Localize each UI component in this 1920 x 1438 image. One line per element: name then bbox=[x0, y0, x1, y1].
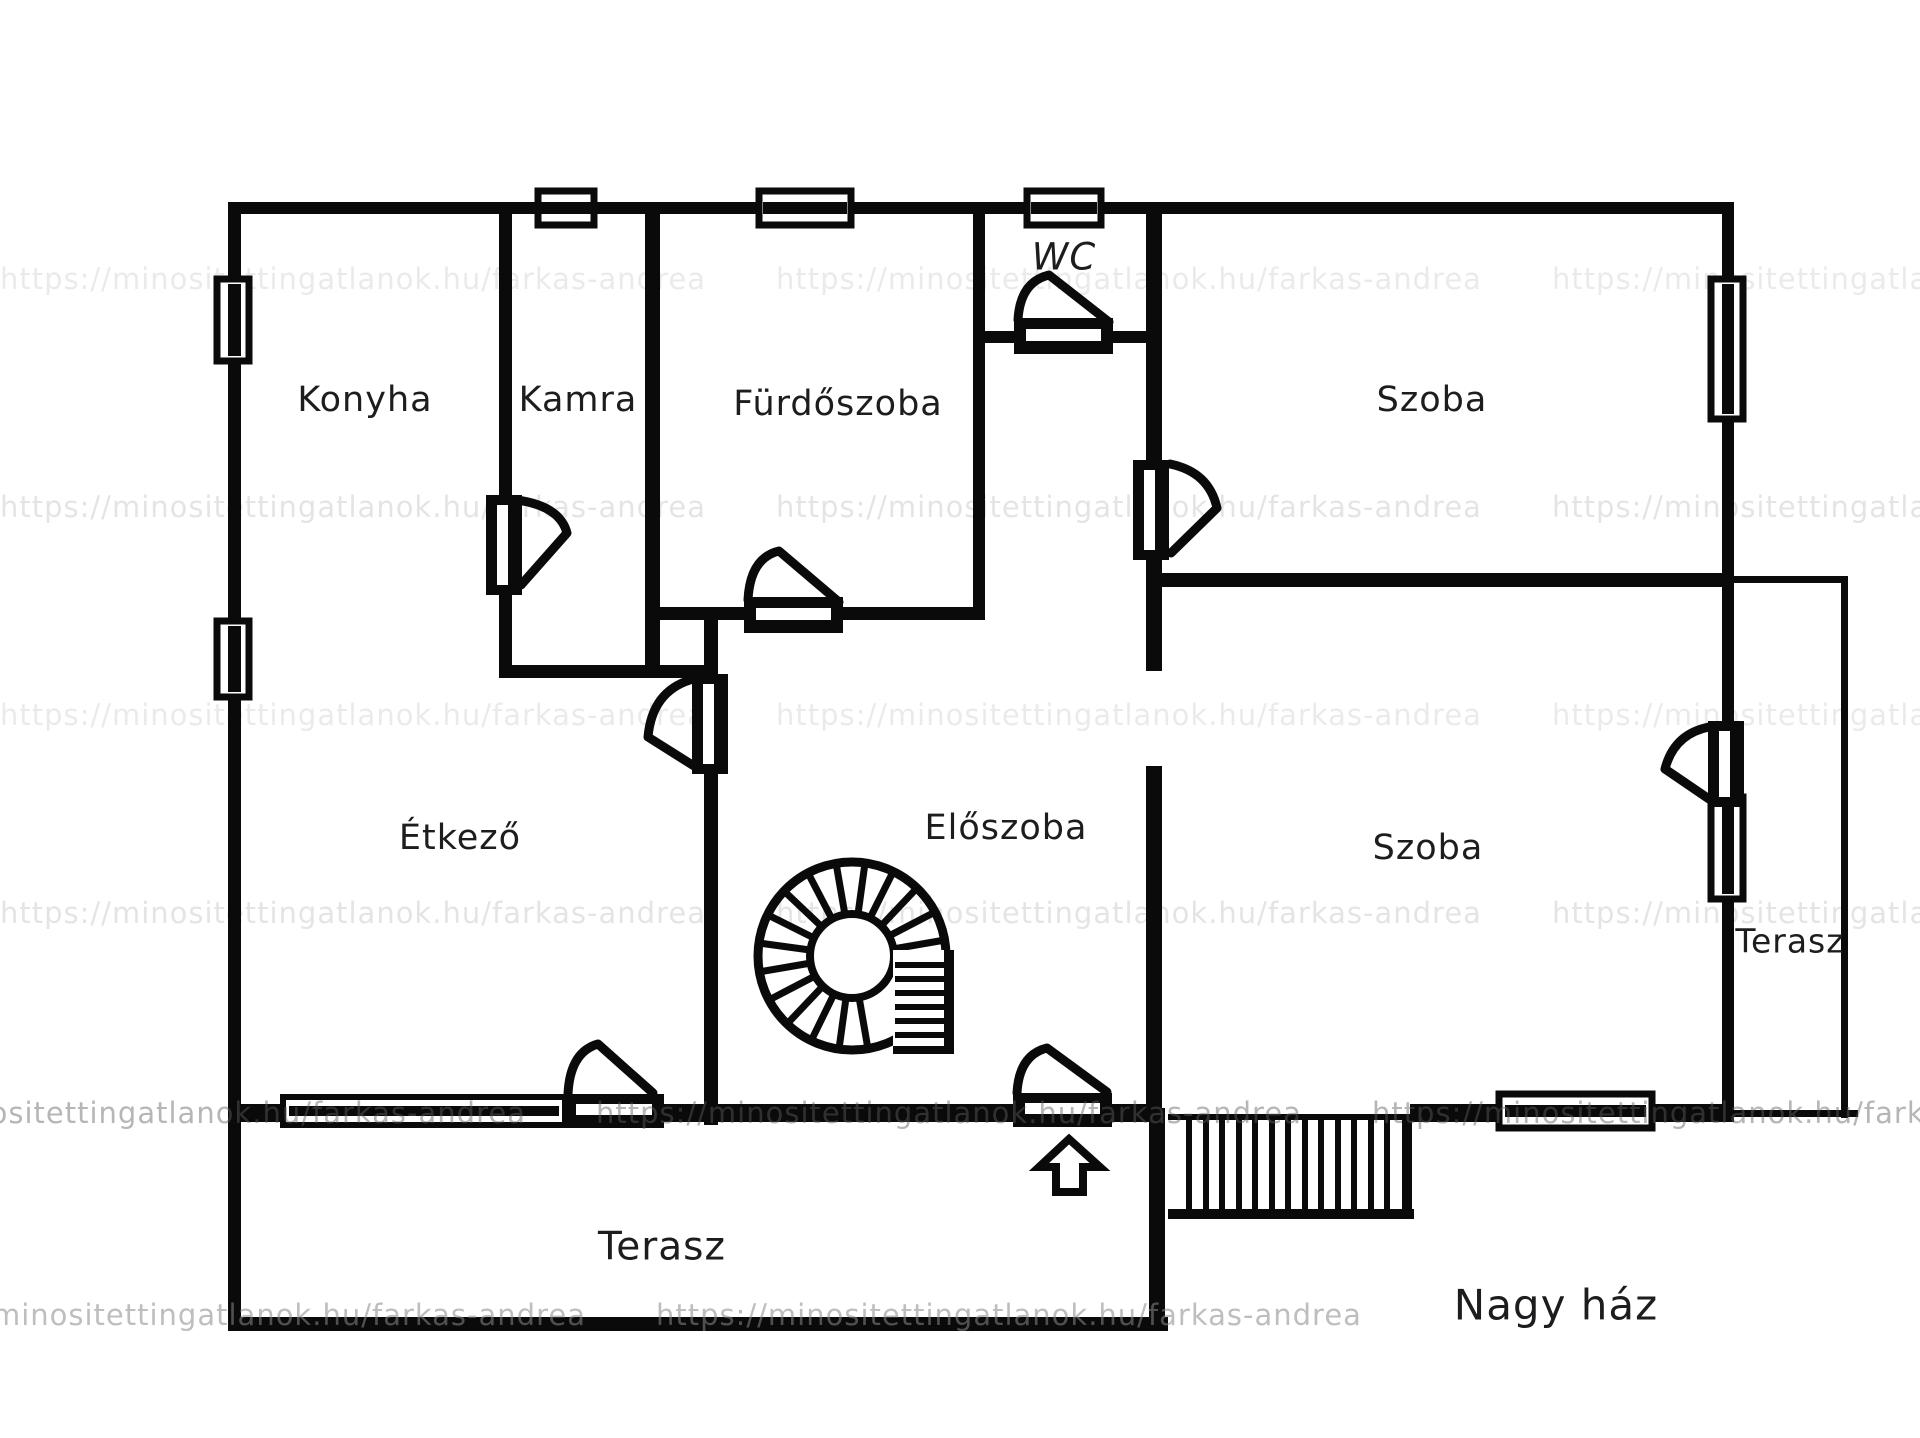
entrance-arrow-icon bbox=[1039, 1139, 1100, 1192]
window-etkezo bbox=[214, 618, 252, 700]
wall bbox=[838, 607, 985, 620]
floor-plan-canvas: https://minositettingatlanok.hu/farkas-a… bbox=[0, 0, 1920, 1438]
spiral-flight bbox=[893, 950, 954, 1054]
spiral-staircase bbox=[758, 862, 954, 1054]
door-terasz-also bbox=[564, 1044, 664, 1128]
door-etkezo bbox=[648, 674, 728, 774]
wall bbox=[499, 665, 718, 678]
wall bbox=[1146, 202, 1162, 671]
terrace-edge bbox=[1734, 576, 1846, 583]
wall bbox=[973, 331, 1018, 343]
window-kamra bbox=[535, 188, 597, 228]
door-szoba-felso bbox=[1133, 460, 1217, 560]
window-furdoszoba bbox=[756, 188, 854, 228]
room-label-etkezo: Étkező bbox=[399, 818, 521, 858]
window-szoba-also bbox=[1708, 794, 1746, 902]
window-szoba-also-del bbox=[1496, 1091, 1655, 1131]
door-wc bbox=[1014, 275, 1113, 354]
window-szoba-felso bbox=[1708, 276, 1746, 422]
terrace-edge bbox=[1734, 1110, 1858, 1117]
wall bbox=[228, 1317, 1168, 1331]
room-label-wc: WC bbox=[1032, 236, 1096, 279]
window-wc bbox=[1024, 188, 1104, 228]
wall bbox=[1651, 1104, 1734, 1122]
room-label-kamra: Kamra bbox=[519, 380, 638, 420]
wall bbox=[241, 1104, 285, 1122]
door-furdoszoba bbox=[744, 551, 843, 633]
wall bbox=[1108, 1104, 1154, 1122]
room-label-konyha: Konyha bbox=[297, 380, 432, 420]
wall bbox=[1410, 1104, 1500, 1122]
door-entrance bbox=[1013, 1048, 1112, 1127]
wall bbox=[1149, 1108, 1165, 1331]
wall bbox=[973, 202, 985, 620]
wall bbox=[228, 202, 241, 1331]
stairs bbox=[1168, 1114, 1414, 1219]
terrace-edge bbox=[1841, 576, 1848, 1118]
room-label-furdoszoba: Fürdőszoba bbox=[733, 384, 943, 424]
room-label-szoba-felso: Szoba bbox=[1377, 380, 1488, 420]
doors bbox=[486, 275, 1744, 1128]
wall bbox=[645, 607, 749, 620]
wall bbox=[1146, 766, 1162, 1108]
window-terasz-also bbox=[280, 1094, 568, 1128]
room-label-terasz-also: Terasz bbox=[598, 1225, 726, 1270]
plan-title: Nagy ház bbox=[1454, 1281, 1658, 1330]
door-szoba-also bbox=[1665, 721, 1744, 807]
room-label-terasz-jobb: Terasz bbox=[1735, 922, 1844, 961]
wall bbox=[499, 202, 512, 678]
room-label-szoba-also: Szoba bbox=[1373, 828, 1484, 868]
window-konyha bbox=[214, 276, 252, 364]
wall bbox=[1152, 573, 1734, 587]
wall bbox=[660, 1104, 1017, 1122]
floor-plan-drawing bbox=[0, 0, 1920, 1438]
wall bbox=[645, 202, 660, 678]
door-kamra bbox=[486, 495, 567, 595]
room-label-eloszoba: Előszoba bbox=[925, 808, 1088, 848]
